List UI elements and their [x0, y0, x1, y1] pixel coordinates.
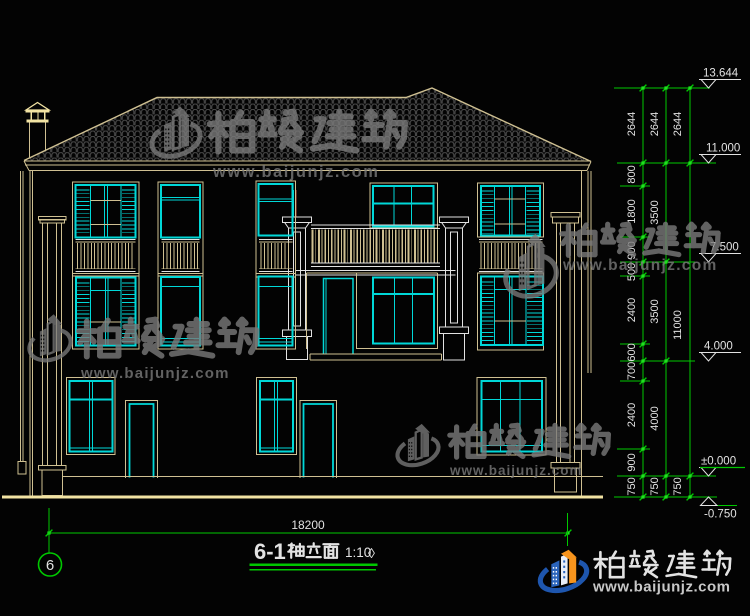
svg-text:3500: 3500: [649, 200, 661, 224]
svg-text:2644: 2644: [672, 112, 684, 136]
svg-text:www.baijunjz.com: www.baijunjz.com: [212, 163, 379, 181]
svg-text:13.644: 13.644: [703, 68, 739, 80]
svg-text:11000: 11000: [672, 310, 684, 340]
svg-text:750: 750: [626, 477, 638, 495]
svg-text:2644: 2644: [649, 112, 661, 136]
svg-text:2644: 2644: [626, 112, 638, 136]
svg-text:3500: 3500: [649, 299, 661, 323]
svg-text:6: 6: [46, 557, 54, 574]
svg-text:◊: ◊: [368, 545, 375, 561]
svg-text:4.000: 4.000: [704, 341, 733, 353]
svg-text:±0.000: ±0.000: [701, 456, 736, 468]
svg-text:600: 600: [626, 343, 638, 361]
svg-text:www.baijunjz.com: www.baijunjz.com: [562, 257, 718, 274]
svg-text:750: 750: [649, 477, 661, 495]
svg-text:6-1: 6-1: [254, 539, 286, 564]
svg-text:900: 900: [626, 453, 638, 471]
svg-text:www.baijunjz.com: www.baijunjz.com: [592, 579, 730, 596]
svg-text:700: 700: [626, 362, 638, 380]
svg-text:750: 750: [672, 477, 684, 495]
svg-text:18200: 18200: [291, 518, 325, 532]
svg-text:-0.750: -0.750: [704, 509, 737, 521]
svg-text:1800: 1800: [626, 199, 638, 223]
svg-text:www.baijunjz.com: www.baijunjz.com: [80, 365, 230, 382]
svg-text:800: 800: [626, 165, 638, 183]
svg-text:2400: 2400: [626, 403, 638, 427]
svg-text:11.000: 11.000: [706, 143, 740, 155]
svg-text:2400: 2400: [626, 298, 638, 322]
svg-text:www.baijunjz.com: www.baijunjz.com: [449, 463, 583, 478]
svg-text:4000: 4000: [649, 406, 661, 430]
